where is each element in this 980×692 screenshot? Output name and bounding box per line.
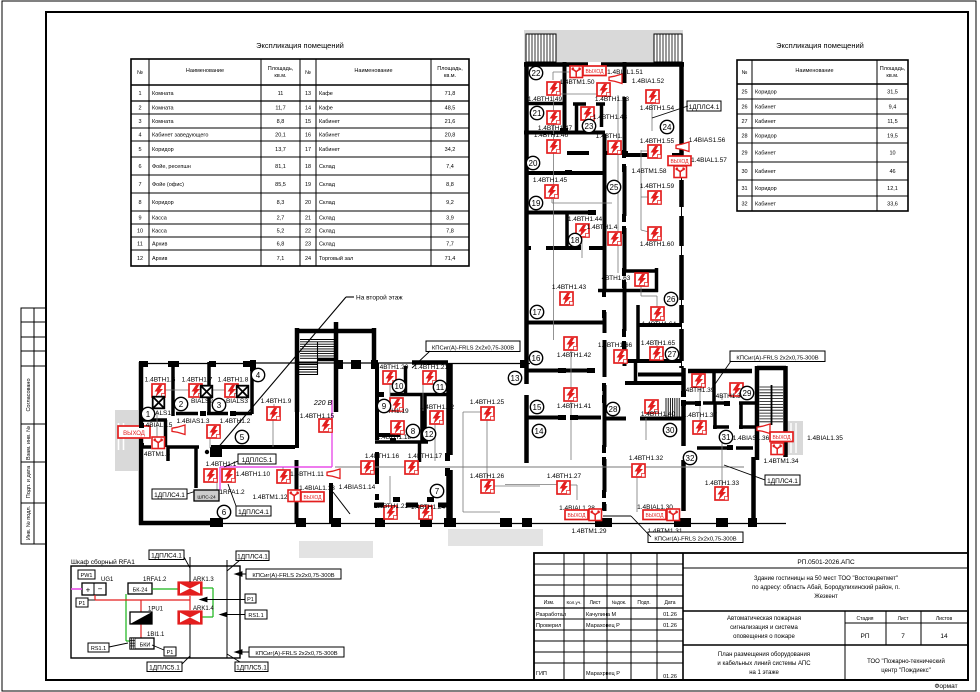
svg-text:Кабинет: Кабинет [755, 119, 776, 125]
svg-text:3: 3 [138, 119, 141, 125]
svg-text:1.4ВТН1.48: 1.4ВТН1.48 [593, 114, 628, 121]
svg-text:Кабинет: Кабинет [755, 169, 776, 175]
svg-text:1.4ВТМ1.34: 1.4ВТМ1.34 [764, 458, 799, 465]
svg-text:1.4BIAS1.36: 1.4BIAS1.36 [733, 435, 770, 442]
svg-text:Согласовано: Согласовано [26, 378, 32, 411]
svg-text:4: 4 [256, 371, 261, 380]
svg-text:34,2: 34,2 [445, 147, 456, 153]
svg-text:КПСиг(А)-FRLS 2х2х0,75-300В: КПСиг(А)-FRLS 2х2х0,75-300В [736, 356, 818, 362]
svg-text:Шкаф сборный RFA1: Шкаф сборный RFA1 [71, 558, 135, 566]
svg-text:Коридор: Коридор [755, 186, 777, 192]
svg-text:1.4ВТН1.45: 1.4ВТН1.45 [533, 177, 568, 184]
svg-text:1.4ВТН1.10: 1.4ВТН1.10 [236, 471, 271, 478]
svg-text:01.26: 01.26 [663, 674, 677, 680]
svg-text:22: 22 [532, 69, 541, 78]
svg-text:1.4ВТН1.46: 1.4ВТН1.46 [534, 132, 569, 139]
svg-text:11: 11 [278, 91, 284, 97]
svg-text:1.4ВТН1.32: 1.4ВТН1.32 [629, 455, 664, 462]
svg-text:Лист: Лист [590, 600, 602, 606]
svg-text:1ДПЛС4.1: 1ДПЛС4.1 [154, 492, 185, 499]
svg-text:ARK1.4: ARK1.4 [193, 606, 214, 612]
svg-text:3: 3 [217, 401, 222, 410]
svg-text:1RFA1.2: 1RFA1.2 [143, 577, 167, 583]
svg-text:1.4BIAL1.51: 1.4BIAL1.51 [607, 69, 643, 76]
svg-text:1: 1 [138, 91, 141, 97]
svg-text:Склад: Склад [319, 182, 336, 188]
svg-text:ВЫХОД: ВЫХОД [123, 431, 145, 437]
svg-text:8: 8 [138, 200, 141, 206]
svg-text:ШПС-24: ШПС-24 [197, 495, 216, 501]
svg-text:24: 24 [663, 123, 672, 132]
svg-text:Кабинет: Кабинет [319, 119, 340, 125]
svg-text:2: 2 [179, 400, 184, 409]
svg-text:БК-24: БК-24 [133, 588, 148, 594]
svg-text:Автоматическая пожарная: Автоматическая пожарная [727, 616, 801, 622]
svg-text:7,4: 7,4 [446, 164, 454, 170]
svg-text:25: 25 [610, 183, 619, 192]
svg-text:Фойе, ресепшн: Фойе, ресепшн [152, 163, 191, 170]
svg-text:Архив: Архив [152, 256, 167, 262]
svg-text:Проверил: Проверил [536, 623, 561, 629]
svg-text:Склад: Склад [319, 164, 336, 170]
svg-text:16: 16 [305, 133, 311, 139]
svg-text:КПСиг(А)-FRLS 2х2х0,75-300В: КПСиг(А)-FRLS 2х2х0,75-300В [255, 651, 337, 657]
svg-text:BIALS3: BIALS3 [226, 398, 248, 405]
svg-text:Изм.: Изм. [544, 600, 555, 606]
svg-text:1.4ВТН1.23: 1.4ВТН1.23 [374, 503, 409, 510]
svg-text:Комната: Комната [152, 119, 174, 125]
svg-text:3,9: 3,9 [446, 216, 454, 222]
svg-text:4ВТН1.39: 4ВТН1.39 [686, 387, 715, 394]
svg-text:22: 22 [305, 229, 311, 235]
svg-text:Комната: Комната [152, 106, 174, 112]
svg-text:UG1: UG1 [101, 577, 114, 583]
svg-text:12,1: 12,1 [887, 186, 898, 192]
svg-text:1ДПЛС4.1: 1ДПЛС4.1 [237, 554, 268, 561]
svg-text:15: 15 [305, 119, 311, 125]
svg-text:P1: P1 [167, 650, 174, 656]
svg-text:Наименование: Наименование [795, 68, 833, 74]
svg-text:5: 5 [240, 433, 245, 442]
svg-text:1ДПЛС5.1: 1ДПЛС5.1 [242, 457, 273, 464]
svg-text:Подп.: Подп. [637, 600, 650, 606]
svg-text:10: 10 [395, 382, 404, 391]
svg-text:1.4BIAL1.57: 1.4BIAL1.57 [691, 157, 727, 164]
svg-text:20: 20 [305, 200, 311, 206]
svg-text:11: 11 [137, 242, 143, 248]
svg-text:30: 30 [666, 426, 675, 435]
svg-text:1.4ВТМ1.50: 1.4ВТМ1.50 [560, 79, 595, 86]
svg-text:кв.м.: кв.м. [274, 73, 287, 79]
svg-text:Подп. и дата: Подп. и дата [26, 465, 32, 498]
svg-text:32: 32 [686, 454, 695, 463]
svg-text:1: 1 [146, 410, 151, 419]
svg-text:14: 14 [535, 427, 544, 436]
svg-text:6: 6 [222, 508, 227, 517]
svg-text:19: 19 [532, 199, 541, 208]
svg-text:29: 29 [741, 151, 747, 157]
svg-text:1.4ВТН1.65: 1.4ВТН1.65 [641, 340, 676, 347]
svg-text:23: 23 [585, 122, 594, 131]
svg-text:1.4ВТН1.40: 1.4ВТН1.40 [641, 411, 676, 418]
svg-text:01.26: 01.26 [663, 623, 677, 629]
svg-text:14: 14 [940, 633, 948, 640]
svg-text:RS1.1: RS1.1 [91, 646, 106, 652]
svg-text:26: 26 [667, 295, 676, 304]
svg-text:19: 19 [305, 182, 311, 188]
svg-text:кв.м.: кв.м. [444, 73, 457, 79]
svg-text:14: 14 [305, 106, 311, 112]
svg-text:1.4ВТН1.8: 1.4ВТН1.8 [218, 377, 249, 384]
svg-text:1.4ВТН1.44: 1.4ВТН1.44 [568, 216, 603, 223]
svg-text:№док.: №док. [612, 600, 627, 606]
svg-text:Лист: Лист [898, 616, 910, 622]
svg-text:1.4ВТМ1.29: 1.4ВТМ1.29 [572, 528, 607, 535]
svg-text:1.4BIAS1.14: 1.4BIAS1.14 [339, 484, 376, 491]
svg-text:КПСиг(А)-FRLS 2х2х0,75-300В: КПСиг(А)-FRLS 2х2х0,75-300В [252, 573, 334, 579]
svg-text:2: 2 [138, 106, 141, 112]
svg-text:4BIAL1.5: 4BIAL1.5 [146, 422, 173, 429]
svg-text:31,5: 31,5 [887, 90, 898, 96]
svg-text:71,4: 71,4 [445, 256, 456, 262]
svg-text:7,7: 7,7 [446, 242, 454, 248]
svg-text:27: 27 [741, 119, 747, 125]
svg-text:29: 29 [743, 389, 752, 398]
svg-text:11,5: 11,5 [887, 119, 897, 125]
svg-text:1.4ВТН1.33: 1.4ВТН1.33 [705, 480, 740, 487]
svg-text:−: − [98, 585, 103, 594]
svg-text:13,7: 13,7 [275, 147, 286, 153]
svg-text:1.4ВТН1.21: 1.4ВТН1.21 [414, 364, 449, 371]
svg-text:№: № [137, 70, 143, 76]
svg-text:26: 26 [741, 105, 747, 111]
svg-text:Площадь,: Площадь, [437, 66, 463, 72]
svg-text:Касса: Касса [152, 216, 168, 222]
svg-text:1.4ВТН1.7: 1.4ВТН1.7 [182, 377, 213, 384]
svg-text:15: 15 [533, 403, 542, 412]
svg-text:+: + [86, 586, 91, 595]
svg-text:1.4ВТН1.6: 1.4ВТН1.6 [145, 377, 176, 384]
svg-text:18: 18 [305, 164, 311, 170]
svg-text:1.4ВТМ1.58: 1.4ВТМ1.58 [632, 168, 667, 175]
svg-text:оповещения о пожаре: оповещения о пожаре [733, 634, 795, 640]
svg-text:30: 30 [741, 169, 747, 175]
svg-text:1.4ВТН1.26: 1.4ВТН1.26 [470, 473, 505, 480]
svg-text:и кабельных линий системы АПС: и кабельных линий системы АПС [717, 660, 811, 667]
svg-text:8,8: 8,8 [277, 119, 285, 125]
svg-text:Наименование: Наименование [186, 68, 224, 74]
svg-text:4ВТН1.20: 4ВТН1.20 [380, 364, 409, 371]
svg-text:РП: РП [860, 633, 869, 640]
svg-text:16: 16 [532, 354, 541, 363]
svg-text:21,6: 21,6 [445, 119, 456, 125]
svg-text:28: 28 [609, 405, 618, 414]
svg-text:1.4BIAL1.13: 1.4BIAL1.13 [299, 485, 335, 492]
svg-text:Кол.уч.: Кол.уч. [566, 600, 581, 605]
svg-text:46: 46 [889, 169, 895, 175]
svg-text:1.4ВТН1.4: 1.4ВТН1.4 [587, 224, 618, 231]
svg-text:220 В: 220 В [313, 400, 333, 407]
svg-text:28: 28 [741, 134, 747, 140]
svg-text:71,8: 71,8 [445, 91, 456, 97]
svg-text:4ВТМ1.4: 4ВТМ1.4 [144, 451, 170, 458]
svg-text:1.4ВТН1.60: 1.4ВТН1.60 [640, 241, 675, 248]
svg-text:20: 20 [529, 159, 538, 168]
svg-text:1PU1: 1PU1 [148, 607, 164, 613]
svg-text:1.4BIAS1.3: 1.4BIAS1.3 [177, 418, 210, 425]
svg-text:21: 21 [305, 216, 311, 222]
svg-text:31: 31 [741, 186, 747, 192]
svg-text:7: 7 [138, 182, 141, 188]
svg-text:Листов: Листов [936, 616, 953, 622]
svg-text:1.4ВТН1.9: 1.4ВТН1.9 [261, 398, 292, 405]
svg-text:1.4ВТН1.43: 1.4ВТН1.43 [552, 284, 587, 291]
svg-text:1ДПЛС4.1: 1ДПЛС4.1 [767, 478, 798, 485]
svg-text:ГИП: ГИП [536, 671, 547, 677]
svg-text:7,8: 7,8 [446, 229, 454, 235]
svg-text:1ДПЛС5.1: 1ДПЛС5.1 [149, 665, 180, 672]
svg-text:по адресу: область Абай, Бород: по адресу: область Абай, Бородулихинский… [752, 584, 900, 591]
svg-text:1.4ВТМ1.12: 1.4ВТМ1.12 [253, 494, 288, 501]
svg-text:23: 23 [305, 242, 311, 248]
svg-text:P1: P1 [247, 597, 254, 603]
svg-text:1.4ВТН1.25: 1.4ВТН1.25 [470, 399, 505, 406]
svg-text:Взам. инв. №: Взам. инв. № [26, 426, 32, 460]
svg-text:КПСиг(А)-FRLS 2х2х0,75-300В: КПСиг(А)-FRLS 2х2х0,75-300В [432, 346, 514, 352]
svg-text:1.4ВТН1.54: 1.4ВТН1.54 [640, 105, 675, 112]
svg-text:Дата: Дата [664, 600, 675, 606]
svg-text:1.4ВТН1.24: 1.4ВТН1.24 [411, 504, 446, 511]
svg-text:9,2: 9,2 [446, 200, 454, 206]
svg-text:1.4ВIА1.52: 1.4ВIА1.52 [632, 78, 665, 85]
svg-text:Стадия: Стадия [856, 616, 873, 622]
svg-text:7,1: 7,1 [277, 256, 285, 262]
svg-text:7: 7 [435, 487, 440, 496]
svg-text:13: 13 [305, 91, 311, 97]
svg-text:31: 31 [722, 433, 731, 442]
svg-text:18: 18 [571, 236, 580, 245]
svg-text:RS1.1: RS1.1 [248, 613, 263, 619]
svg-text:Коридор: Коридор [152, 147, 174, 153]
svg-text:Формат: Формат [934, 683, 957, 690]
svg-text:Архив: Архив [152, 242, 167, 248]
svg-text:Площадь,: Площадь, [880, 66, 906, 72]
svg-text:4ВТН1.63: 4ВТН1.63 [602, 275, 631, 282]
svg-text:85,5: 85,5 [275, 182, 286, 188]
svg-text:1.4ВТН1.22: 1.4ВТН1.22 [420, 404, 455, 411]
svg-text:1.4ВТН1.59: 1.4ВТН1.59 [640, 183, 675, 190]
svg-text:27: 27 [668, 350, 677, 359]
svg-text:1.4ВТН1.42: 1.4ВТН1.42 [557, 352, 592, 359]
svg-text:1.4ВТН1.53: 1.4ВТН1.53 [595, 96, 630, 103]
svg-text:Кабинет: Кабинет [755, 202, 776, 208]
svg-text:19,5: 19,5 [887, 134, 898, 140]
svg-text:1.4ВТН1.2: 1.4ВТН1.2 [220, 418, 251, 425]
svg-text:Комната: Комната [152, 91, 174, 97]
svg-text:7: 7 [901, 633, 905, 640]
svg-text:сигнализация и система: сигнализация и система [730, 625, 798, 631]
svg-text:13: 13 [511, 374, 520, 383]
svg-text:На второй этаж: На второй этаж [356, 294, 403, 302]
svg-text:P1: P1 [79, 601, 86, 607]
svg-text:ARK1.3: ARK1.3 [193, 577, 214, 583]
svg-text:Кабинет: Кабинет [319, 133, 340, 139]
svg-text:Коридор: Коридор [152, 200, 174, 206]
svg-text:Кабинет заведующего: Кабинет заведующего [152, 133, 208, 139]
svg-text:6: 6 [138, 164, 141, 170]
svg-text:1.4BIAL1.35: 1.4BIAL1.35 [807, 435, 843, 442]
svg-text:Кабинет: Кабинет [319, 147, 340, 153]
svg-text:1.4ВТН1.1: 1.4ВТН1.1 [206, 461, 237, 468]
svg-text:48,5: 48,5 [445, 106, 456, 112]
svg-text:20,1: 20,1 [275, 133, 286, 139]
svg-text:25: 25 [741, 90, 747, 96]
svg-text:2,7: 2,7 [277, 216, 285, 222]
svg-text:Кафе: Кафе [319, 106, 333, 112]
svg-text:БКИ: БКИ [140, 643, 151, 649]
svg-text:12: 12 [425, 430, 434, 439]
svg-text:1.4ВТН1.37: 1.4ВТН1.37 [683, 412, 718, 419]
svg-text:Коридор: Коридор [755, 134, 777, 140]
svg-text:24: 24 [305, 256, 311, 262]
svg-text:1ДПЛС5.1: 1ДПЛС5.1 [236, 665, 267, 672]
svg-text:4: 4 [138, 133, 141, 139]
svg-text:№: № [305, 70, 311, 76]
svg-text:11,7: 11,7 [275, 106, 285, 112]
svg-text:6,8: 6,8 [277, 242, 285, 248]
svg-text:РП.0501-2026.АПС: РП.0501-2026.АПС [797, 559, 855, 566]
svg-text:на 1 этаже: на 1 этаже [749, 670, 779, 676]
svg-text:33,6: 33,6 [887, 202, 898, 208]
svg-text:1.4ВТН1.17: 1.4ВТН1.17 [408, 453, 443, 460]
svg-text:8: 8 [411, 427, 416, 436]
svg-text:Кабинет: Кабинет [755, 151, 776, 157]
svg-text:1ВI1.1: 1ВI1.1 [147, 632, 165, 638]
svg-text:Площадь,: Площадь, [268, 66, 294, 72]
svg-text:17: 17 [305, 147, 311, 153]
svg-text:9: 9 [382, 402, 387, 411]
svg-text:№: № [742, 70, 748, 76]
svg-text:9: 9 [138, 216, 141, 222]
svg-text:План размещения оборудования: План размещения оборудования [718, 652, 810, 658]
svg-text:кв.м.: кв.м. [886, 73, 899, 79]
svg-text:Кабинет: Кабинет [755, 105, 776, 111]
svg-text:81,1: 81,1 [275, 164, 286, 170]
svg-text:1ДПЛС4.1: 1ДПЛС4.1 [238, 509, 269, 516]
svg-text:5: 5 [138, 147, 141, 153]
svg-text:PW1: PW1 [81, 573, 93, 579]
svg-text:Касса: Касса [152, 229, 168, 235]
svg-text:Разработал: Разработал [536, 612, 566, 618]
svg-text:8,8: 8,8 [446, 182, 454, 188]
svg-text:Инв. № подл.: Инв. № подл. [26, 505, 32, 540]
svg-text:BIALS2: BIALS2 [191, 398, 213, 405]
svg-text:8,3: 8,3 [277, 200, 285, 206]
svg-text:ТОО "Пожарно-технический: ТОО "Пожарно-технический [867, 658, 945, 665]
svg-text:32: 32 [741, 202, 747, 208]
svg-text:1ДПЛС4.1: 1ДПЛС4.1 [689, 104, 720, 111]
svg-text:Склад: Склад [319, 216, 336, 222]
svg-text:1.4ВТН1.49: 1.4ВТН1.49 [528, 96, 563, 103]
svg-text:1ДПЛС4.1: 1ДПЛС4.1 [151, 553, 182, 560]
svg-text:центр "Пождиекс": центр "Пождиекс" [881, 668, 931, 674]
svg-text:1.4ВТН1.27: 1.4ВТН1.27 [547, 473, 582, 480]
svg-text:1.4ВТН1.66: 1.4ВТН1.66 [598, 342, 633, 349]
svg-text:Фойе (офис): Фойе (офис) [152, 181, 184, 188]
svg-text:20,8: 20,8 [445, 133, 456, 139]
svg-text:Коридор: Коридор [755, 90, 777, 96]
svg-text:1.4ВТН1.11: 1.4ВТН1.11 [290, 471, 324, 478]
svg-text:1.4ВТН1.16: 1.4ВТН1.16 [365, 453, 400, 460]
svg-text:1.4BIAS1.56: 1.4BIAS1.56 [689, 137, 726, 144]
svg-text:01.26: 01.26 [663, 612, 677, 618]
svg-text:10: 10 [889, 151, 895, 157]
svg-text:КПСиг(А)-FRLS 2х2х0,75-300В: КПСиг(А)-FRLS 2х2х0,75-300В [654, 537, 736, 543]
svg-text:Наименование: Наименование [354, 68, 392, 74]
svg-text:12: 12 [137, 256, 143, 262]
svg-text:Мараховец Р: Мараховец Р [586, 623, 620, 629]
svg-text:Здание гостиницы на 50 мест ТО: Здание гостиницы на 50 мест ТОО "Востокц… [754, 576, 898, 582]
svg-text:Экспликация помещений: Экспликация помещений [256, 41, 344, 50]
svg-text:Склад: Склад [319, 229, 336, 235]
svg-text:Склад: Склад [319, 242, 336, 248]
svg-text:1.4ВТН1.6: 1.4ВТН1.6 [596, 133, 627, 140]
svg-text:17: 17 [533, 308, 542, 317]
svg-text:9,4: 9,4 [889, 105, 897, 111]
svg-text:Марахрвец Р: Марахрвец Р [586, 671, 620, 677]
svg-text:1.4ВТН1.55: 1.4ВТН1.55 [640, 138, 675, 145]
svg-text:Торговый зал: Торговый зал [319, 255, 353, 262]
svg-text:1.4ВТН1.41: 1.4ВТН1.41 [557, 403, 592, 410]
svg-text:5,2: 5,2 [277, 229, 285, 235]
svg-text:10: 10 [137, 229, 143, 235]
svg-text:Склад: Склад [319, 200, 336, 206]
svg-text:Кафе: Кафе [319, 91, 333, 97]
svg-text:21: 21 [533, 109, 542, 118]
svg-text:1.4ВТН1.64: 1.4ВТН1.64 [642, 321, 677, 328]
svg-text:Качулина М: Качулина М [586, 612, 617, 618]
svg-text:11: 11 [436, 383, 445, 392]
svg-text:Экспликация помещений: Экспликация помещений [776, 41, 864, 50]
svg-text:Жезкент: Жезкент [814, 594, 838, 600]
